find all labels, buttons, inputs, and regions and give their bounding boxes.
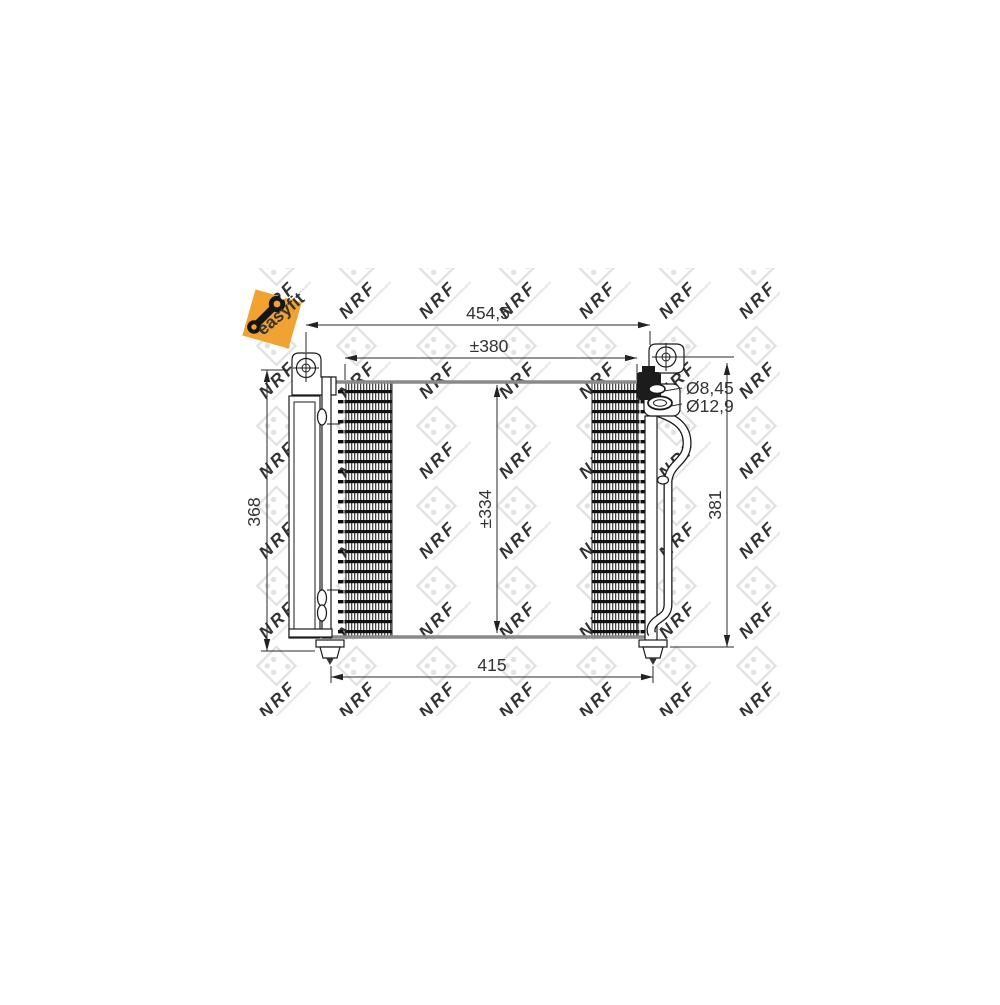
dimension-label: 454,5 (466, 303, 510, 323)
fitting-boss (318, 409, 327, 425)
dimension-label: ±334 (475, 489, 495, 528)
tube-stubs-left (338, 383, 346, 636)
pipe-clamp (658, 476, 669, 484)
drawing-page: NRF (0, 0, 1000, 1000)
side-panel-foot-bar (289, 629, 332, 637)
port-large (648, 397, 672, 410)
fin-block-right (592, 383, 638, 636)
fitting-boss (318, 605, 327, 621)
dimension-label: 381 (705, 490, 725, 519)
port-small (649, 385, 665, 394)
dimension-label: 415 (477, 655, 506, 675)
receiver-drier-body (645, 416, 657, 642)
condenser-technical-drawing: NRF (0, 0, 1000, 1000)
fin-block-left (346, 383, 392, 636)
fitting-boss (318, 590, 327, 606)
dimension-label: 368 (244, 497, 264, 526)
dimension-label: ±380 (470, 336, 509, 356)
